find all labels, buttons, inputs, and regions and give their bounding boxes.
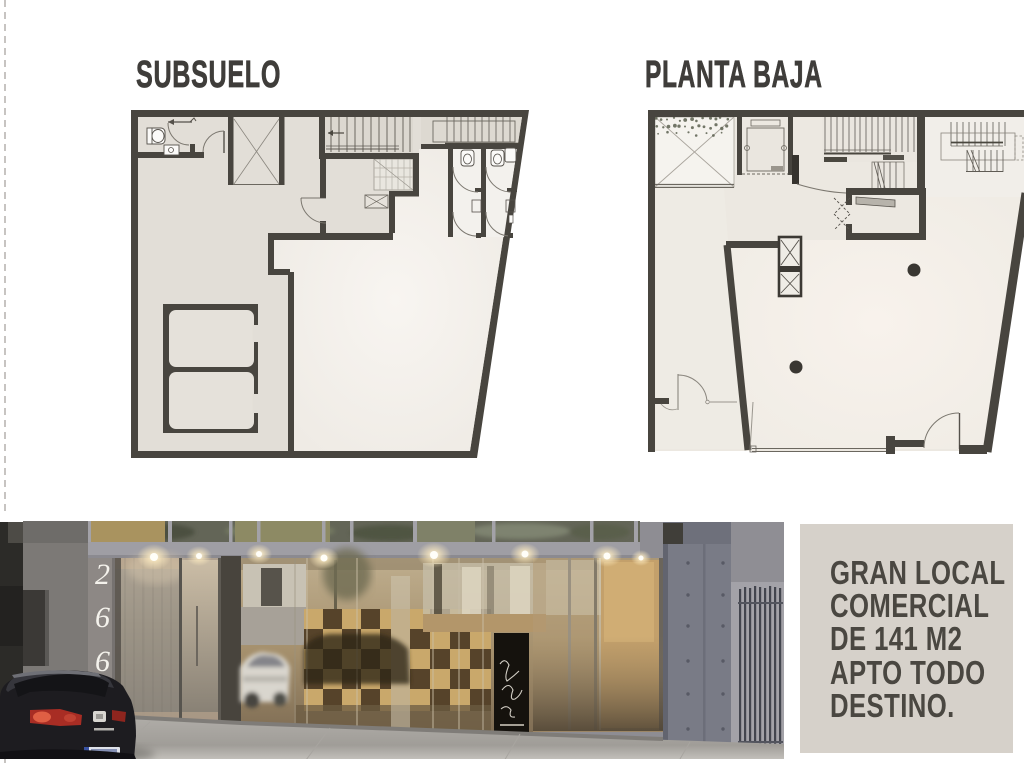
svg-text:2: 2 bbox=[95, 558, 110, 591]
svg-text:6: 6 bbox=[95, 601, 110, 634]
